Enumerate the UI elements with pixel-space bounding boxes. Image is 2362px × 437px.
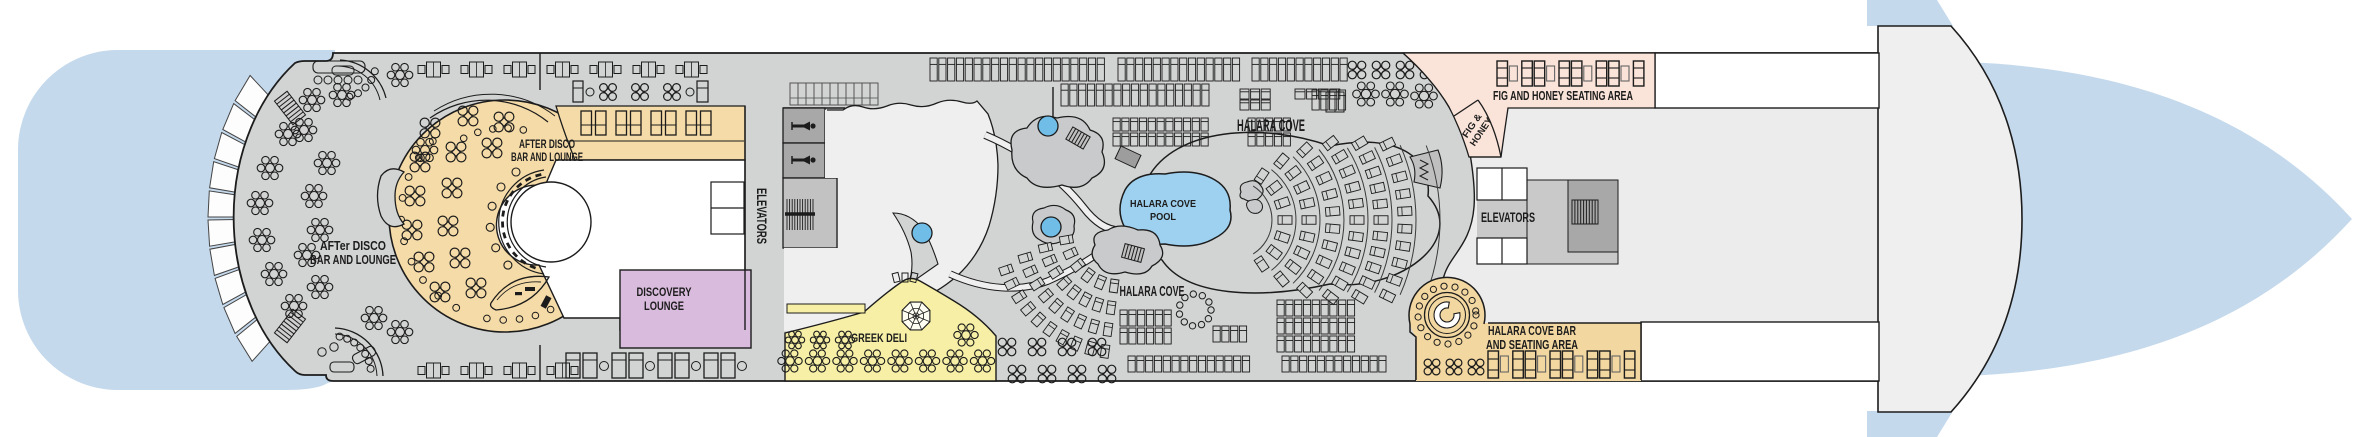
svg-text:POOL: POOL [1150,211,1176,223]
svg-text:ELEVATORS: ELEVATORS [1481,210,1535,225]
svg-text:BAR AND LOUNGE: BAR AND LOUNGE [310,253,396,267]
svg-text:GREEK DELI: GREEK DELI [851,331,907,345]
svg-text:HALARA COVE: HALARA COVE [1130,198,1196,210]
svg-text:AFTer DISCO: AFTer DISCO [320,239,386,253]
svg-text:ELEVATORS: ELEVATORS [754,188,769,244]
svg-text:HALARA COVE BAR: HALARA COVE BAR [1488,324,1576,338]
svg-text:AND SEATING AREA: AND SEATING AREA [1486,338,1578,352]
svg-text:HALARA COVE: HALARA COVE [1237,117,1305,135]
svg-text:BAR AND LOUNGE: BAR AND LOUNGE [511,152,583,164]
svg-text:HALARA COVE: HALARA COVE [1120,283,1185,300]
svg-text:DISCOVERY: DISCOVERY [637,285,692,299]
svg-text:LOUNGE: LOUNGE [644,299,684,313]
svg-text:AFTER DISCO: AFTER DISCO [519,139,575,151]
svg-text:FIG AND HONEY SEATING AREA: FIG AND HONEY SEATING AREA [1493,89,1633,103]
